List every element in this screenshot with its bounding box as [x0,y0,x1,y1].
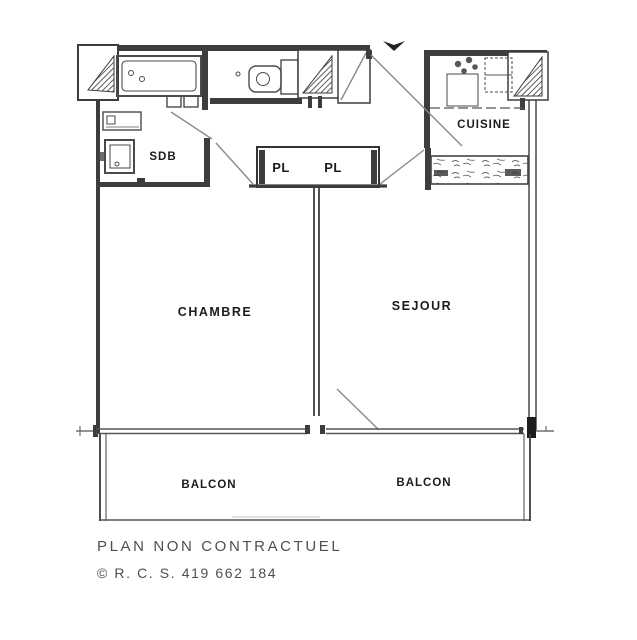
wc-duct [298,50,340,108]
entrance-post [366,50,372,59]
left-wall [96,98,100,434]
floor-plan-page: SDB [0,0,637,640]
sejour-label: SEJOUR [392,299,452,313]
entrance-door [338,50,372,103]
balcony: BALCON BALCON [100,434,530,521]
window-right-pillar [527,417,536,438]
toilet-icon [236,60,298,94]
shelf-icon [103,112,141,130]
balcon-right-label: BALCON [396,477,451,489]
entry-door-swing [371,55,462,146]
window-center-post-right [320,425,325,434]
chambre-label: CHAMBRE [178,305,252,319]
door-post-left [167,96,181,107]
kitchen-door-swing [380,150,424,184]
stove-icon [455,57,478,74]
door-swings [171,55,462,430]
window-center-post-left [305,425,310,434]
window-wall [76,417,554,438]
chambre-door-swing [216,143,253,184]
wc-entry [210,41,405,108]
balcony-door-swing [337,389,379,430]
pl-right-label: PL [324,160,342,175]
pl-left-label: PL [272,160,290,175]
sdb-bottom-wall [100,182,210,187]
counter-unit-left [447,74,478,106]
kitchen-left-wall [424,50,430,148]
wc-bottom-wall [210,98,302,104]
window-left-post [93,425,98,437]
sdb-label: SDB [149,151,176,163]
sdb-right-wall-lower [204,138,210,187]
outer-walls [78,45,547,434]
washbasin-icon [99,140,145,184]
central-wall [314,187,319,416]
corner-duct-top-left [78,45,118,100]
cuisine-label: CUISINE [457,119,511,131]
footer: PLAN NON CONTRACTUEL © R. C. S. 419 662 … [97,538,342,581]
kitchen-worktop-strip [425,148,528,190]
bathtub-icon [117,56,201,96]
entrance-arrow-icon [383,41,405,51]
balcon-left-label: BALCON [181,479,236,491]
closets-pl: PL PL [249,147,387,187]
door-post-right [184,96,198,107]
rcs-number: © R. C. S. 419 662 184 [97,565,277,581]
plan-disclaimer: PLAN NON CONTRACTUEL [97,538,342,555]
kitchen-corner-duct [508,52,548,110]
sdb-right-wall-upper [202,50,208,110]
sdb-door-swing [171,112,212,139]
floor-plan-canvas: SDB [0,0,637,640]
